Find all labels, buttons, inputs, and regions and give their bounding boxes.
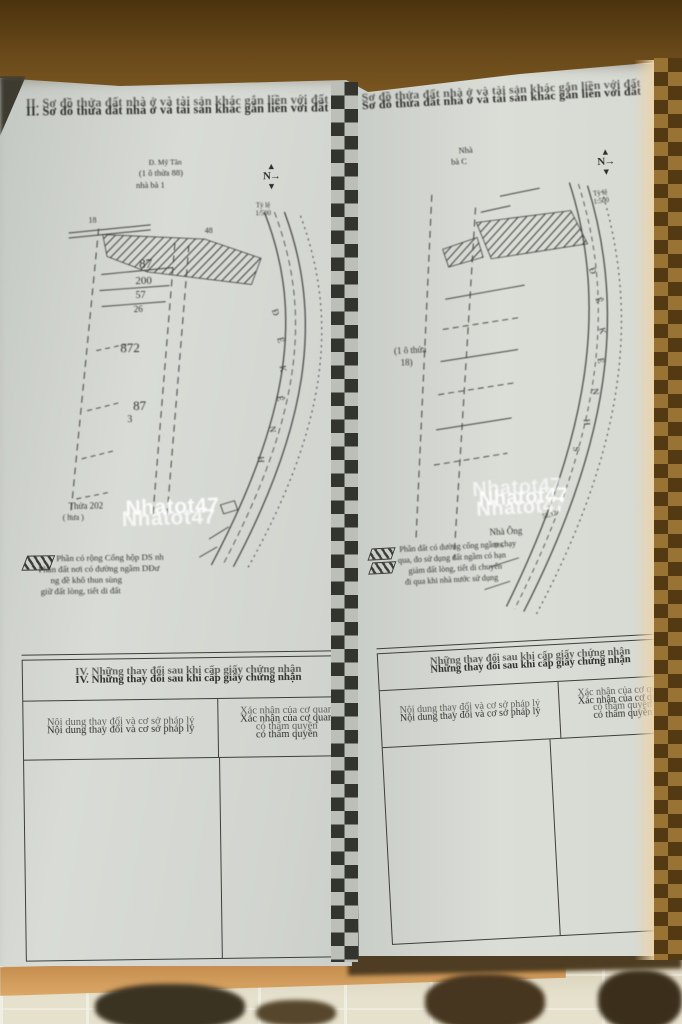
changes-col2-header-line1: Xác nhận của cơ quan <box>240 711 333 728</box>
left-page-content: II. Sơ đồ thửa đất nhà ở và tài sản khác… <box>0 73 362 968</box>
floor-dark-shape <box>425 974 545 1024</box>
right-section-title: Sơ đồ thửa đất nhà ở và tài sản khác gắn… <box>362 83 662 114</box>
floor-dark-shape <box>95 984 245 1024</box>
changes-col1-header: Nội dung thay đổi và cơ sở pháp lý <box>380 682 562 747</box>
road-name-letter: Đ <box>587 266 599 276</box>
parcel-number: 872 <box>120 340 140 355</box>
changes-table: IV. Những thay đổi sau khi cấp giấy chứn… <box>22 655 359 962</box>
hatched-area <box>476 210 588 260</box>
road-name-letter: H <box>582 418 593 426</box>
changes-col1-header: Nội dung thay đổi và cơ sở pháp lý <box>23 699 219 760</box>
changes-col2-header-line2: có thẩm quyền <box>256 727 318 744</box>
legend-line: ng đề khô thun sùng <box>50 574 121 585</box>
road-name-letter: H <box>256 456 266 463</box>
legend-line: Phần đất nơi có đường ngầm DĐư <box>38 563 159 575</box>
page-right-edge <box>634 60 656 960</box>
page-gap-perforation <box>331 82 358 962</box>
road-name-letter: N <box>267 426 278 434</box>
changes-table-title: IV. Những thay đổi sau khi cấp giấy chứn… <box>23 656 355 702</box>
left-section-title: II. Sơ đồ thửa đất nhà ở và tài sản khác… <box>26 100 344 119</box>
site-watermark: Nhatot47 <box>125 494 220 521</box>
photo-of-land-certificate: II. Sơ đồ thửa đất nhà ở và tài sản khác… <box>0 0 682 1024</box>
parcel-number: 87 <box>139 256 153 271</box>
edge-number: 48 <box>205 226 213 235</box>
parcel-202-sub: ( hưa ) <box>63 513 85 522</box>
north-arrow-icon: ▲ N→ ▼ <box>263 162 280 191</box>
parcel-18-label-line1: (1 ô thửa <box>394 344 427 356</box>
parcel-number: 57 <box>136 290 146 301</box>
hatch-legend-icon <box>367 547 395 560</box>
left-parcel-note: (1 ô thửa 88) <box>139 167 183 178</box>
legend-line: giữ đất lòng, tiết di đất <box>41 585 121 596</box>
right-house-label-1: Nhà <box>458 145 473 156</box>
right-page-content: Sơ đồ thửa đất nhà ở và tài sản khác gắn… <box>338 52 682 960</box>
column-divider <box>219 758 223 958</box>
floor-dark-shape <box>598 970 682 1024</box>
legend-line: Phần có rộng Cống hộp DS nh <box>56 552 164 564</box>
road-name-letter: Ê <box>275 395 286 402</box>
parcel-number: 3 <box>127 414 132 425</box>
road-name-letter: Đ <box>270 308 282 318</box>
edge-number: 18 <box>88 216 96 225</box>
site-watermark: Nhatot47 <box>478 484 569 512</box>
left-street-label: Đ. Mỹ Tân <box>149 157 182 166</box>
hatched-area <box>103 232 262 286</box>
road-name-letter: S <box>571 446 581 452</box>
changes-table-body <box>24 756 358 961</box>
parcel-number: 26 <box>134 304 144 314</box>
parcel-number: 200 <box>135 275 152 287</box>
road-name-letter: N <box>590 388 601 396</box>
parcel-202-label: Thửa 202 <box>68 501 103 511</box>
parcel-18-label-line2: 18) <box>400 357 413 368</box>
hatched-area <box>442 237 483 267</box>
left-house-note: nhà bà 1 <box>136 180 165 190</box>
right-perforated-edge <box>654 58 682 960</box>
house-owner-label: Nhà Ông <box>489 526 523 538</box>
north-arrow-down-icon: ▼ <box>267 182 276 191</box>
column-divider <box>550 739 561 935</box>
road-name-letter: K <box>278 365 289 374</box>
road-name-letter: Ê <box>594 296 605 305</box>
right-house-label-2: bà C <box>451 156 467 167</box>
hatch-legend-icon <box>368 561 396 574</box>
parcel-number: 87 <box>133 398 147 413</box>
floor-dark-shape <box>256 1000 336 1024</box>
